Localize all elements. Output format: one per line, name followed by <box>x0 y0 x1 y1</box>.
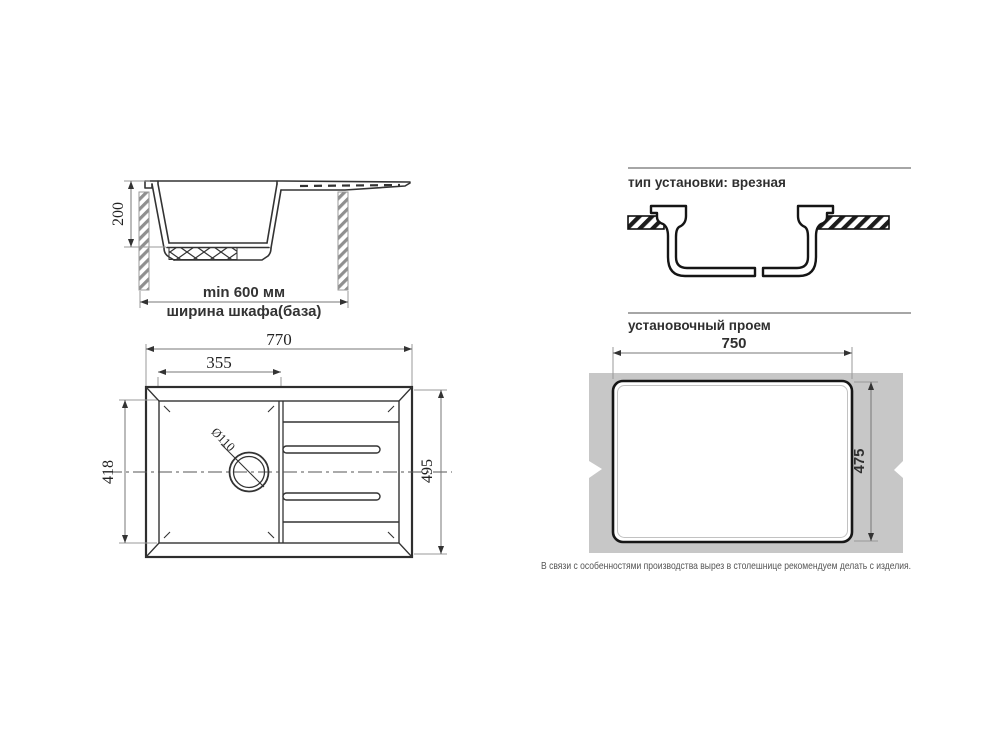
dim-overall-width-value: 770 <box>266 330 292 349</box>
dim-cabinet-width: min 600 мм ширина шкафа(база) <box>140 284 348 320</box>
cutout-opening <box>613 381 852 542</box>
dim-overall-width: 770 <box>146 330 412 386</box>
mount-type-view: тип установки: врезная <box>628 168 911 276</box>
sink-top-view: 770 355 Ø110 418 495 <box>100 330 452 557</box>
dim-depth-value: 200 <box>110 202 127 226</box>
dim-overall-depth-value: 495 <box>419 459 436 483</box>
drainboard-groove-top <box>283 446 380 453</box>
sink-bottom-crosshatch <box>169 248 237 260</box>
cabinet-side-right <box>338 192 348 290</box>
dim-cutout-height-value: 475 <box>851 448 868 473</box>
dim-cutout-width-value: 750 <box>721 335 746 352</box>
dim-bowl-width-value: 355 <box>206 353 232 372</box>
cutout-heading: установочный проем <box>628 318 771 333</box>
production-note: В связи с особенностями производства выр… <box>541 560 911 572</box>
mount-heading: тип установки: врезная <box>628 175 786 190</box>
countertop-right <box>818 216 889 229</box>
dim-cutout-width: 750 <box>613 335 852 379</box>
cabinet-side-left <box>139 192 149 290</box>
dim-min-width-value: min 600 мм <box>203 284 285 301</box>
cutout-view: установочный проем 750 475 В связи с осо… <box>541 313 911 572</box>
cabinet-width-label: ширина шкафа(база) <box>167 303 322 320</box>
cabinet-section-view: 200 min 600 мм ширина шкафа(база) <box>110 181 410 320</box>
sink-rim-profile-right <box>763 206 833 276</box>
drawing-canvas: 200 min 600 мм ширина шкафа(база) тип ус… <box>0 0 1000 750</box>
drainboard-ribs-section <box>300 185 400 186</box>
dim-bowl-depth-value: 418 <box>100 460 117 484</box>
sink-rim-profile-left <box>651 206 755 276</box>
drainboard-groove-bottom <box>283 493 380 500</box>
sink-technical-drawing: 200 min 600 мм ширина шкафа(база) тип ус… <box>0 0 1000 750</box>
